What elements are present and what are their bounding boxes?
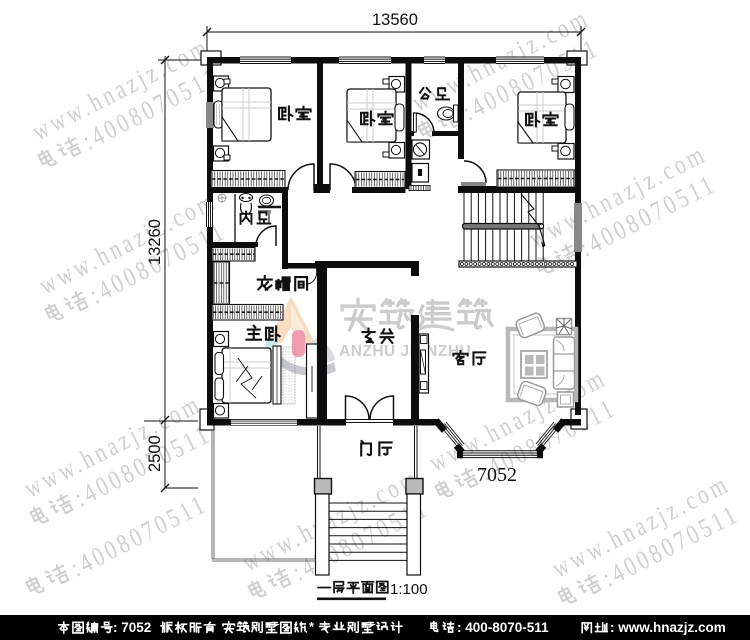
svg-text:13560: 13560 xyxy=(372,11,418,29)
svg-text:ANZHU JIANZHU: ANZHU JIANZHU xyxy=(339,343,471,360)
svg-text:13260: 13260 xyxy=(146,219,164,265)
svg-text:: www.hnazjz.com: : www.hnazjz.com xyxy=(610,620,726,635)
svg-text:: 7052: : 7052 xyxy=(113,620,151,635)
svg-text:2500: 2500 xyxy=(146,435,164,472)
svg-text:7052: 7052 xyxy=(477,464,517,486)
svg-text:: 400-8070-511: : 400-8070-511 xyxy=(457,620,549,635)
svg-text:1:100: 1:100 xyxy=(390,581,428,598)
